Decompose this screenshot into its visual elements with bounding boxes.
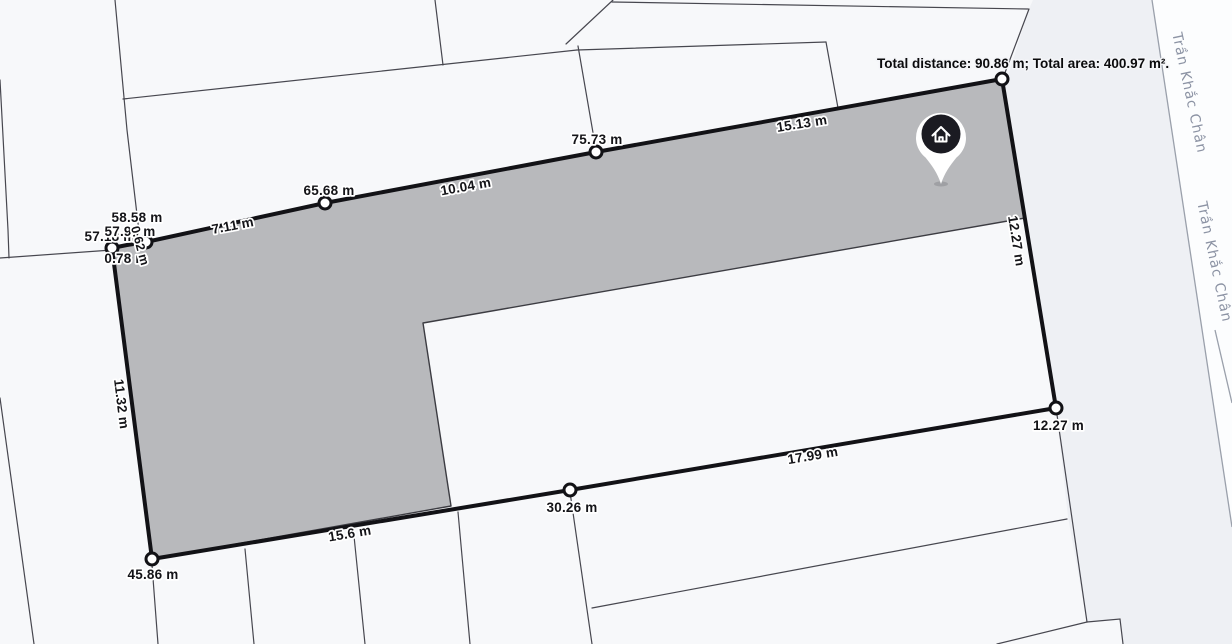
total-summary: Total distance: 90.86 m; Total area: 400… [877,56,1169,71]
cumulative-label: 75.73 m [572,132,623,147]
measure-vertex[interactable] [319,197,331,209]
measure-vertex[interactable] [590,146,602,158]
cumulative-label: 45.86 m [128,567,179,582]
map-svg: 12.27 m 12.27 m 17.99 m 30.26 m 15.6 m 4… [0,0,1232,644]
cumulative-label: 30.26 m [547,500,598,515]
cumulative-label: 65.68 m [304,183,355,198]
pin-inner-circle [922,115,961,154]
measure-vertex[interactable] [146,553,158,565]
cumulative-label: 12.27 m [1033,418,1084,433]
measure-vertex[interactable] [1050,402,1062,414]
measure-vertex[interactable] [996,73,1008,85]
map-canvas[interactable]: 12.27 m 12.27 m 17.99 m 30.26 m 15.6 m 4… [0,0,1232,644]
measure-vertex[interactable] [564,484,576,496]
cumulative-label: 58.58 m [112,210,163,225]
